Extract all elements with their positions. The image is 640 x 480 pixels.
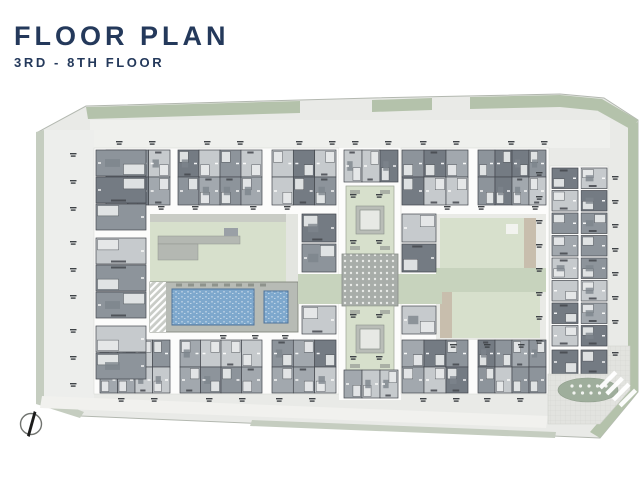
core-gardens bbox=[342, 186, 398, 372]
swimming-pool bbox=[172, 289, 254, 325]
right-courtyard bbox=[436, 214, 546, 340]
title-block: FLOOR PLAN 3RD - 8TH FLOOR bbox=[14, 22, 230, 70]
dotted-plaza bbox=[342, 254, 398, 306]
page-title: FLOOR PLAN bbox=[14, 22, 230, 52]
page-subtitle: 3RD - 8TH FLOOR bbox=[14, 55, 230, 70]
floor-plan-page: FLOOR PLAN 3RD - 8TH FLOOR bbox=[0, 0, 640, 480]
jacuzzi-pool bbox=[264, 291, 288, 323]
ramp-hatch bbox=[150, 282, 166, 332]
left-courtyard bbox=[150, 214, 298, 332]
right-units-bar bbox=[552, 168, 607, 374]
north-compass-icon bbox=[21, 411, 42, 437]
floor-plan-graphic bbox=[0, 0, 640, 480]
